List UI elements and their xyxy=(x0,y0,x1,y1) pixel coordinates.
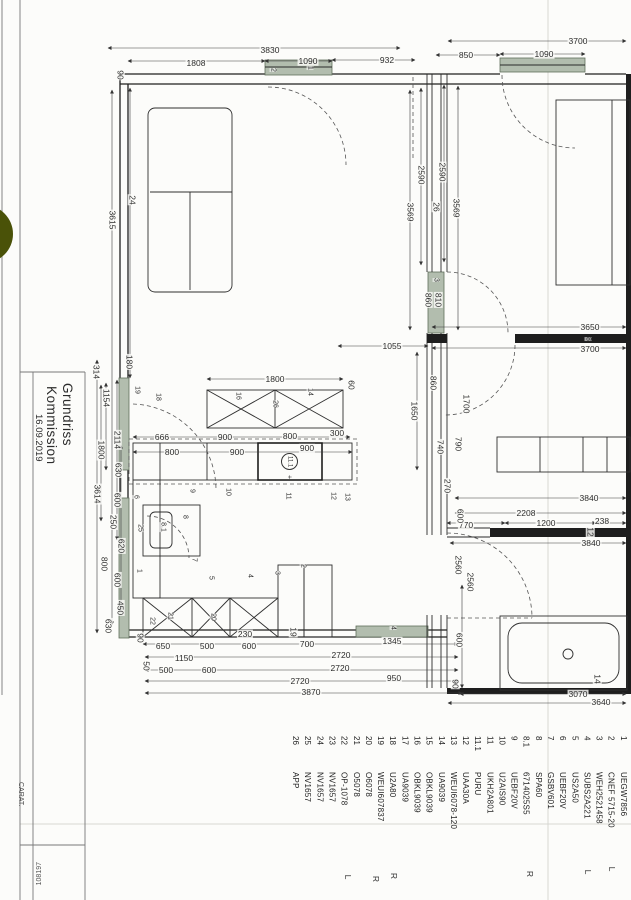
legend-item-code: US2A50 xyxy=(570,772,578,803)
legend-item-code: CNEF 5715-20 xyxy=(607,772,615,828)
legend-item-code: OP-1078 xyxy=(340,772,348,805)
dimension-label: 3070 xyxy=(568,690,589,699)
dimension-label: 2590 xyxy=(417,165,426,186)
legend-item-number: 4 xyxy=(582,736,590,740)
dimension-label: 600 xyxy=(455,632,464,648)
dimension-label: 500 xyxy=(199,642,215,651)
legend-item-number: 23 xyxy=(327,736,335,745)
legend-item: 24 NV1657 xyxy=(314,736,326,888)
legend-item: 14 UA9039 xyxy=(436,736,448,888)
legend-item: 6 UEBF20V xyxy=(557,736,569,888)
kitchen-wall-cabinets xyxy=(207,390,343,428)
legend-item: 21 O5078 xyxy=(351,736,363,888)
legend-item-code: OBKL9039 xyxy=(425,772,433,813)
position-number-label: 1 xyxy=(307,66,314,70)
legend-item-number: 7 xyxy=(546,736,554,740)
legend-item-code: SPA60 xyxy=(534,772,542,797)
legend-item-code: NV1657 xyxy=(327,772,335,802)
legend-item-code: UEBF20V xyxy=(558,772,566,809)
dimension-label: 3870 xyxy=(301,688,322,697)
dimension-label: 1090 xyxy=(534,50,555,59)
wall-top xyxy=(120,74,626,84)
dimension-label: 3569 xyxy=(406,202,415,223)
legend-item: 5 US2A50 xyxy=(569,736,581,888)
dimension-label: 860 xyxy=(424,292,433,308)
legend-item: 7 GSBV601 xyxy=(545,736,557,888)
dimension-label: 1154 xyxy=(102,388,111,408)
position-number-label: + xyxy=(286,475,293,479)
position-number-label: 20 xyxy=(210,613,217,621)
legend-item-code: O6078 xyxy=(364,772,372,797)
legend-item-code: OBKL9039 xyxy=(412,772,420,813)
legend-item-code: U2A80 xyxy=(388,772,396,797)
wardrobe xyxy=(497,437,630,472)
dimension-label: 800 xyxy=(164,448,180,457)
dimension-label: 3840 xyxy=(581,539,602,548)
legend-item-number: 25 xyxy=(303,736,311,745)
position-number-label: 2 xyxy=(300,564,307,568)
legend-item-code: SUBS2A221 xyxy=(582,772,590,819)
dimension-label: 3640 xyxy=(591,698,612,707)
dimension-label: 2720 xyxy=(330,664,351,673)
dimension-label: 26 xyxy=(432,201,441,212)
dimension-label: 600 xyxy=(201,666,217,675)
position-number-label: 25 xyxy=(137,524,144,532)
drawing-title-line1: Grundriss xyxy=(60,383,75,446)
legend-item-number: 8 xyxy=(534,736,542,740)
legend-item: 17 UA9039 xyxy=(399,736,411,888)
legend-item-number: 18 xyxy=(388,736,396,745)
legend-item-code: PURU xyxy=(473,772,481,795)
dimension-label: 19 xyxy=(289,626,298,637)
position-number-label: 11 xyxy=(285,492,292,499)
dimension-label: 600 xyxy=(113,492,122,508)
legend-item-number: 21 xyxy=(352,736,360,745)
wall-rooms-divider xyxy=(515,334,631,343)
dimension-label: 2720 xyxy=(290,677,311,686)
dimension-label: 3700 xyxy=(568,37,589,46)
position-number-label: 14 xyxy=(307,388,314,396)
position-number-label: 1 xyxy=(136,569,143,573)
dimension-label: 314 xyxy=(92,364,101,380)
dimension-label: 3840 xyxy=(579,494,600,503)
document-number: 108197 xyxy=(36,862,43,885)
legend-item-code: O5078 xyxy=(352,772,360,797)
position-number-label: 19 xyxy=(134,386,141,394)
drawing-date: 16.09.2019 xyxy=(33,414,44,462)
dimension-label: 1800 xyxy=(265,375,286,384)
legend-item: 1 UEGW7856 xyxy=(618,736,630,888)
legend-item-number: 16 xyxy=(412,736,420,745)
legend-item-number: 8.1 xyxy=(522,736,530,747)
bathtub xyxy=(500,616,627,690)
legend-item-number: 13 xyxy=(449,736,457,745)
legend-item-code: WEUI6078-120 xyxy=(449,772,457,829)
hinge-side-marker: R xyxy=(525,871,535,877)
legend-item-code: UEGW7856 xyxy=(619,772,627,816)
dimension-label: 900 xyxy=(229,448,245,457)
legend-item-number: 17 xyxy=(400,736,408,745)
dimension-label: 860 xyxy=(429,375,438,391)
legend-item-number: 14 xyxy=(437,736,445,745)
position-number-label: 21 xyxy=(167,612,174,620)
legend-item-number: 15 xyxy=(425,736,433,745)
position-number-label: 10 xyxy=(225,488,232,496)
legend-item-code: 6714025S5 xyxy=(522,772,530,815)
legend-item: 12 UAA30A xyxy=(460,736,472,888)
legend-item: 20 O6078 xyxy=(363,736,375,888)
dimension-label: 800 xyxy=(282,432,298,441)
legend-item-number: 6 xyxy=(558,736,566,740)
kitchen-sink-unit xyxy=(143,505,200,556)
legend-item-number: 5 xyxy=(570,736,578,740)
dimension-label: 90 xyxy=(136,632,145,643)
legend-item-number: 1 xyxy=(619,736,627,740)
legend-item: 18 U2A80 xyxy=(387,736,399,888)
position-number-label: 26 xyxy=(272,400,279,408)
legend-item-number: 11.1 xyxy=(473,736,481,751)
legend-item: 9 UEBF20V xyxy=(509,736,521,888)
legend-item-code: WEH2521458 xyxy=(595,772,603,824)
dimension-label: 24 xyxy=(128,194,137,205)
dimension-label: 450 xyxy=(116,600,125,616)
position-number-label: 6 xyxy=(133,495,140,499)
position-number-label: 8.1 xyxy=(160,522,167,532)
legend-item: 10 U2AIS90 xyxy=(496,736,508,888)
legend-item-number: 12 xyxy=(461,736,469,745)
dimension-label: 1090 xyxy=(298,57,319,66)
dimension-label: 932 xyxy=(379,56,395,65)
parts-legend: 1 UEGW7856 2 CNEF 5715-20 3 WEH2521458 4… xyxy=(289,736,630,888)
dimension-label: 1150 xyxy=(174,654,194,663)
legend-item-number: 26 xyxy=(291,736,299,745)
legend-item: 26 APP xyxy=(290,736,302,888)
dimension-label: 238 xyxy=(594,517,610,526)
legend-item-number: 9 xyxy=(510,736,518,740)
dimension-label: 740 xyxy=(436,439,445,455)
dimension-label: 900 xyxy=(299,444,315,453)
position-number-label: 8 xyxy=(182,515,189,519)
legend-item-code: U2AIS90 xyxy=(497,772,505,805)
dimension-label: 1650 xyxy=(410,401,419,422)
dimension-label: 620 xyxy=(117,538,126,554)
dimension-label: 14 xyxy=(593,673,602,684)
scanned-floor-plan-sheet: Grundriss Kommission 16.09.2019 CARAT. 1… xyxy=(0,0,631,900)
legend-item-number: 2 xyxy=(607,736,615,740)
legend-item-code: UEBF20V xyxy=(510,772,518,809)
sofa xyxy=(148,108,232,292)
dimension-label: 800 xyxy=(100,556,109,572)
position-number-label: 3 xyxy=(433,278,440,282)
hinge-side-marker: R xyxy=(389,873,399,879)
legend-item: 25 NV1657 xyxy=(302,736,314,888)
dimension-label: 810 xyxy=(434,292,443,308)
legend-item: 16 OBKL9039 xyxy=(411,736,423,888)
dimension-label: 230 xyxy=(237,630,253,639)
dimension-label: 2560 xyxy=(454,555,463,576)
dimension-label: 666 xyxy=(154,433,170,442)
dimension-label: 3615 xyxy=(108,210,117,231)
legend-item: 2 CNEF 5715-20 xyxy=(606,736,618,888)
hinge-side-marker: L xyxy=(583,870,593,875)
position-number-label: 9 xyxy=(189,489,196,493)
dimension-label: 90 xyxy=(116,69,125,80)
legend-item: 11.1 PURU xyxy=(472,736,484,888)
legend-item-number: 22 xyxy=(340,736,348,745)
legend-item: 19 WEUI607837 xyxy=(375,736,387,888)
legend-item-number: 3 xyxy=(595,736,603,740)
legend-item: 4 SUBS2A221 xyxy=(581,736,593,888)
position-number-label: 5 xyxy=(208,576,215,580)
legend-item: 23 NV1657 xyxy=(326,736,338,888)
dimension-label: 3569 xyxy=(452,198,461,219)
position-number-label: 13 xyxy=(344,493,351,501)
wall-left-green-lower xyxy=(119,498,129,638)
legend-item-code: NV1657 xyxy=(315,772,323,802)
position-number-label: 7 xyxy=(191,558,198,562)
hinge-side-marker: R xyxy=(371,876,381,882)
legend-item-number: 20 xyxy=(364,736,372,745)
position-number-label: 18 xyxy=(155,393,162,401)
dimension-label: 650 xyxy=(155,642,171,651)
legend-item: 8 SPA60 xyxy=(533,736,545,888)
legend-item-code: UAA30A xyxy=(461,772,469,804)
dimension-label: 630 xyxy=(104,618,113,634)
hinge-side-marker: L xyxy=(343,875,353,880)
position-number-label: 12 xyxy=(330,492,337,500)
wall-rooms-divider-left xyxy=(427,334,447,343)
dimension-label: 2114 xyxy=(113,430,122,450)
dimension-label: 1808 xyxy=(186,59,207,68)
legend-item: 13 WEUI6078-120 xyxy=(448,736,460,888)
position-number-label: 4 xyxy=(247,574,254,578)
dimension-label: 2560 xyxy=(466,572,475,593)
wall-left-green-upper xyxy=(119,378,129,470)
dimension-label: 250 xyxy=(109,514,118,530)
dimension-label: 600 xyxy=(241,642,257,651)
dimension-label: 3614 xyxy=(93,484,102,505)
legend-item-code: WEUI607837 xyxy=(376,772,384,822)
legend-item-number: 10 xyxy=(497,736,505,745)
position-number-label: 22 xyxy=(149,617,156,625)
dimension-label: 1200 xyxy=(536,519,557,528)
dimension-label: 600 xyxy=(456,508,465,524)
dimension-label: 270 xyxy=(443,478,452,494)
position-number-label: 4 xyxy=(390,626,397,630)
legend-item-code: UA9039 xyxy=(400,772,408,802)
legend-item-number: 11 xyxy=(485,736,493,744)
dimension-label: 60 xyxy=(347,379,356,390)
legend-item-code: APP xyxy=(291,772,299,789)
kitchen-base-cabinets xyxy=(129,439,357,598)
dimension-label: 1055 xyxy=(382,342,403,351)
legend-item: 3 WEH2521458 xyxy=(594,736,606,888)
dimension-label: 3700 xyxy=(580,345,601,354)
software-credit: CARAT. xyxy=(17,782,24,806)
dimension-label: 2208 xyxy=(516,509,537,518)
dimension-label: 500 xyxy=(158,666,174,675)
wall-bath-bottom xyxy=(447,688,631,694)
dimension-label: 180 xyxy=(125,354,134,370)
legend-item-number: 19 xyxy=(376,736,384,745)
dimension-label: 850 xyxy=(458,51,474,60)
drawing-title-line2: Kommission xyxy=(44,386,59,465)
legend-item: 11 UKH2A801 xyxy=(484,736,496,888)
dimension-label: 90 xyxy=(451,678,460,689)
dimension-label: 600 xyxy=(113,572,122,588)
dimension-label: 3830 xyxy=(260,46,281,55)
position-number-label: 3 xyxy=(274,571,281,575)
dimension-label: 1345 xyxy=(382,637,403,646)
legend-item-code: GSBV601 xyxy=(546,772,554,809)
dimension-label: 3650 xyxy=(580,323,601,332)
legend-item-code: UA9039 xyxy=(437,772,445,802)
dimension-label: 1700 xyxy=(462,394,471,415)
position-number-label: 16 xyxy=(235,392,242,400)
dimension-label: 950 xyxy=(386,674,402,683)
dimension-label: 2720 xyxy=(331,651,352,660)
dimension-label: 300 xyxy=(329,429,345,438)
position-number-label: 8 xyxy=(585,337,592,341)
legend-item: 8.1 6714025S5 xyxy=(521,736,533,888)
legend-item: 22 OP-1078 xyxy=(339,736,351,888)
dimension-label: 50 xyxy=(142,660,151,671)
dimension-label: 12 xyxy=(586,526,595,537)
position-number-label: 2 xyxy=(270,68,277,72)
dimension-lines xyxy=(97,41,626,703)
legend-item-code: NV1657 xyxy=(303,772,311,802)
dimension-label: 1800 xyxy=(97,440,106,461)
legend-item-number: 24 xyxy=(315,736,323,745)
dimension-label: 2590 xyxy=(438,162,447,183)
dimension-label: 900 xyxy=(217,433,233,442)
dimension-label: 630 xyxy=(114,462,123,478)
dimension-label: 700 xyxy=(299,640,315,649)
circled-position-label: 11.1 xyxy=(281,453,298,470)
legend-item-code: UKH2A801 xyxy=(485,772,493,814)
kitchen-bottom-cabinets xyxy=(143,565,332,637)
hinge-side-marker: L xyxy=(607,867,617,872)
legend-item: 15 OBKL9039 xyxy=(424,736,436,888)
dimension-label: 790 xyxy=(454,436,463,452)
bed xyxy=(556,100,630,285)
wall-bath-divider xyxy=(490,528,631,537)
